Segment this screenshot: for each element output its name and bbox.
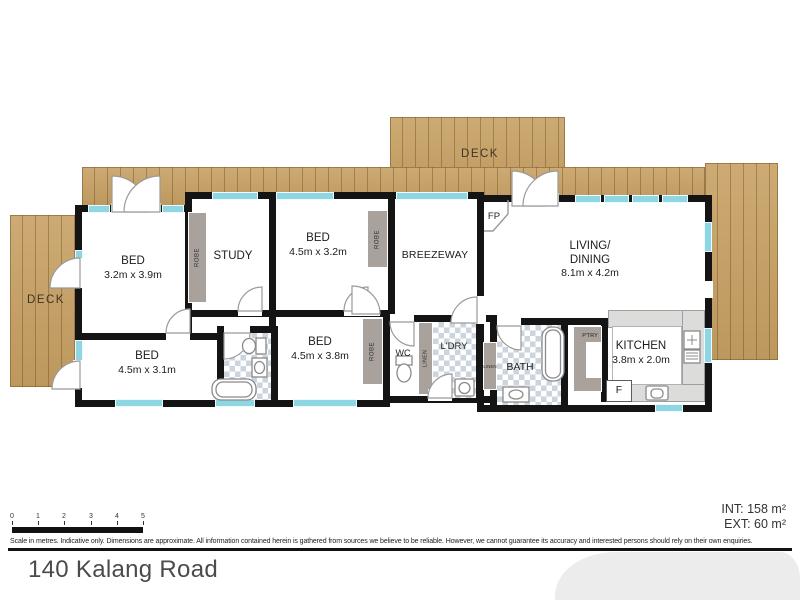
window-kitchen-bottom xyxy=(655,404,683,412)
scale-tickmark xyxy=(38,521,39,525)
deck-right xyxy=(705,163,778,360)
window-ensuite-bottom xyxy=(215,399,255,407)
label-fridge: F xyxy=(606,384,632,396)
scale-tickmark xyxy=(64,521,65,525)
kitchen-counter-bottom xyxy=(630,384,705,402)
floor-laundry xyxy=(433,322,476,398)
window-living-top-4 xyxy=(662,195,688,203)
opening-bath xyxy=(497,317,521,326)
scale-tick-3: 3 xyxy=(89,513,93,520)
window-study-top xyxy=(212,192,258,200)
scale-tickmark xyxy=(91,521,92,525)
opening-laundry xyxy=(428,389,452,401)
bed1-name: BED xyxy=(83,255,183,269)
kitchen-dims: 3.8m x 2.0m xyxy=(586,354,696,368)
floor-plan-page: DECK DECK ROBE ROBE ROBE xyxy=(0,0,800,600)
window-bed3-top xyxy=(276,192,334,200)
opening-study xyxy=(238,306,262,316)
disclaimer-text: Scale in metres. Indicative only. Dimens… xyxy=(10,538,796,545)
bed2-dims: 4.5m x 3.1m xyxy=(92,364,202,378)
label-bed2: BED 4.5m x 3.1m xyxy=(92,350,202,377)
bed3-name: BED xyxy=(258,232,378,246)
scale-tick-2: 2 xyxy=(62,513,66,520)
window-living-top-2 xyxy=(604,195,629,203)
bed4-name: BED xyxy=(262,336,378,350)
external-area: EXT: 60 m² xyxy=(721,517,786,532)
label-bed3: BED 4.5m x 3.2m xyxy=(258,232,378,259)
scale-tickmark xyxy=(117,521,118,525)
kitchen-name: KITCHEN xyxy=(586,340,696,354)
label-fireplace: FP xyxy=(484,211,504,222)
property-address: 140 Kalang Road xyxy=(28,556,218,584)
opening-living-french xyxy=(512,193,559,204)
window-living-top-1 xyxy=(575,195,601,203)
bed3-dims: 4.5m x 3.2m xyxy=(258,246,378,260)
scale-tickmark xyxy=(12,521,13,525)
opening-bed1-french xyxy=(111,203,161,214)
linen-bath: LINEN xyxy=(483,342,497,390)
scale-tickmark xyxy=(143,521,144,525)
living-name-1: LIVING/ xyxy=(530,240,650,254)
label-living: LIVING/ DINING 8.1m x 4.2m xyxy=(530,240,650,281)
scale-bar xyxy=(12,527,143,533)
label-bath: BATH xyxy=(496,361,544,373)
opening-ensuite xyxy=(224,325,250,334)
label-wc: WC xyxy=(389,348,417,358)
label-laundry: L'DRY xyxy=(432,341,476,352)
footer-divider xyxy=(8,548,792,551)
window-bed1-top-left xyxy=(88,205,110,213)
bed2-name: BED xyxy=(92,350,202,364)
deck-left-label: DECK xyxy=(14,294,78,306)
deck-top-label: DECK xyxy=(445,148,515,160)
scale-tick-5: 5 xyxy=(141,513,145,520)
label-pantry: P'TRY xyxy=(575,333,605,339)
opening-bed2-deck xyxy=(73,360,84,388)
opening-bed4 xyxy=(352,306,380,316)
bed4-dims: 4.5m x 3.8m xyxy=(262,350,378,364)
scale-tick-1: 1 xyxy=(36,513,40,520)
internal-area: INT: 158 m² xyxy=(721,502,786,517)
bed1-dims: 3.2m x 3.9m xyxy=(83,269,183,283)
label-bed1: BED 3.2m x 3.9m xyxy=(83,255,183,282)
opening-living-deck-right xyxy=(703,281,713,298)
living-name-2: DINING xyxy=(530,254,650,268)
window-living-right xyxy=(704,222,712,252)
window-bed2-bottom xyxy=(115,399,163,407)
label-bed4: BED 4.5m x 3.8m xyxy=(262,336,378,363)
linen-wc: LINEN xyxy=(418,322,433,395)
area-summary: INT: 158 m² EXT: 60 m² xyxy=(721,502,786,532)
label-breezeway: BREEZEWAY xyxy=(384,249,486,263)
agency-watermark xyxy=(555,552,800,600)
label-kitchen: KITCHEN 3.8m x 2.0m xyxy=(586,340,696,367)
scale-tick-4: 4 xyxy=(115,513,119,520)
window-bed4-bottom xyxy=(293,399,357,407)
opening-bed1-bed2 xyxy=(166,331,190,340)
window-kitchen-right xyxy=(704,328,712,363)
living-dims: 8.1m x 4.2m xyxy=(530,267,650,281)
window-living-top-3 xyxy=(632,195,659,203)
opening-hall-living xyxy=(475,296,486,324)
scale-tick-0: 0 xyxy=(10,513,14,520)
window-bed1-top-right xyxy=(162,205,184,213)
opening-wc xyxy=(390,314,414,323)
window-breezeway-top xyxy=(396,192,468,200)
